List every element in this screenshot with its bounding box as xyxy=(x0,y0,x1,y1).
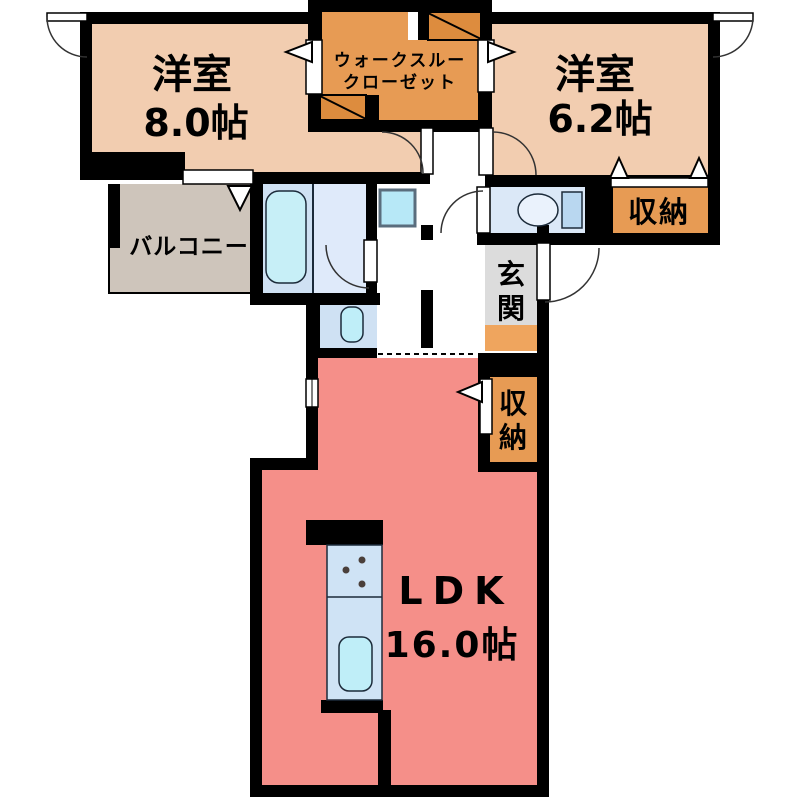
exterior-door-leaf xyxy=(47,13,87,21)
floor-plan: 洋室 8.0帖 ウォークスルー クローゼット 洋室 6.2帖 収納 バルコニー … xyxy=(0,0,800,800)
washroom-door-leaf xyxy=(364,240,377,282)
bedroom-second-label: 洋室 xyxy=(555,52,635,98)
stove-burner-icon xyxy=(359,581,366,588)
bedroom-main-label: 洋室 xyxy=(152,52,232,98)
stove-burner-icon xyxy=(343,567,350,574)
storage-upper-label: 収納 xyxy=(628,195,690,229)
washbasin-icon xyxy=(341,307,363,342)
bedroom-main-area: 8.0帖 xyxy=(143,101,248,145)
exterior-door-leaf xyxy=(713,13,753,21)
stove-burner-icon xyxy=(359,557,366,564)
kitchen-partition-bottom xyxy=(321,700,383,713)
balcony-label: バルコニー xyxy=(129,234,249,260)
ldk-area: 16.0帖 xyxy=(385,625,520,666)
storage-hall-label-char2: 納 xyxy=(499,421,527,454)
entrance-label-char1: 玄 xyxy=(497,258,525,291)
washing-machine-icon xyxy=(380,190,415,226)
walk-through-closet-label-line1: ウォークスルー xyxy=(334,51,467,71)
bedroom-second-area: 6.2帖 xyxy=(547,97,652,141)
toilet-door-leaf xyxy=(477,187,490,233)
toilet-tank-icon xyxy=(562,192,582,228)
walk-through-closet-label-line2: クローゼット xyxy=(343,72,457,93)
front-door-leaf xyxy=(537,243,550,300)
entrance-label-char2: 関 xyxy=(497,292,525,325)
ldk-label: LDK xyxy=(398,569,513,613)
bathtub-icon xyxy=(266,191,306,283)
bedroom-second-door-leaf xyxy=(479,128,493,175)
toilet-icon xyxy=(518,194,558,226)
kitchen-sink-icon xyxy=(339,637,372,691)
storage-hall-label-char1: 収 xyxy=(499,387,528,420)
storage-opening xyxy=(611,178,708,187)
floor-plan-page: 洋室 8.0帖 ウォークスルー クローゼット 洋室 6.2帖 収納 バルコニー … xyxy=(0,0,800,800)
balcony-window xyxy=(183,170,253,184)
window xyxy=(408,12,418,40)
entrance-step xyxy=(485,325,537,351)
kitchen-partition-top xyxy=(306,520,383,545)
